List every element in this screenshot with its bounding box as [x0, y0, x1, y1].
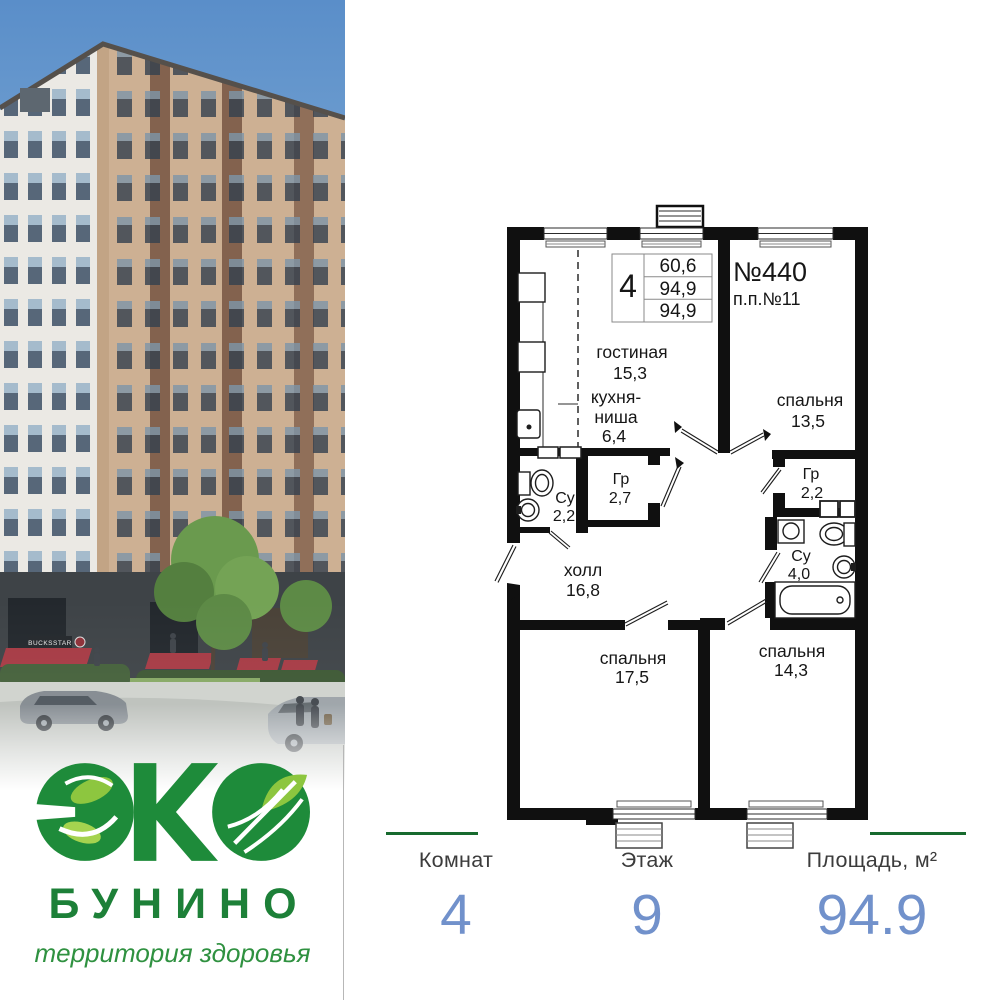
- summary-label: Площадь, м²: [782, 848, 962, 873]
- area-row: 94,9: [660, 301, 697, 322]
- room-name: Гр: [803, 466, 820, 483]
- apt-number: №440: [733, 257, 807, 287]
- toilet-tank-icon: [518, 472, 530, 495]
- eco-emblem: [36, 758, 310, 866]
- summary-label: Этаж: [577, 848, 717, 873]
- toilet-tank-icon: [844, 523, 855, 546]
- room-name: Су: [791, 548, 811, 565]
- brand-tagline: территория здоровья: [0, 940, 345, 966]
- summary-rooms: Комнат 4: [386, 848, 526, 944]
- building-photo: BUCKSSTAR: [0, 0, 345, 790]
- eco-letter-e-icon: [36, 763, 134, 861]
- room-area: 2,7: [609, 490, 631, 507]
- room-name: Су: [555, 490, 575, 507]
- room-area: 4,0: [788, 566, 810, 583]
- room-area: 17,5: [615, 667, 649, 687]
- room-name: спальня: [759, 641, 825, 661]
- floor-plan: 4 60,6 94,9 94,9 №440 п.п.№11 гостиная 1…: [478, 195, 868, 855]
- window-icon: [640, 228, 703, 247]
- vent-shaft-icon: [657, 206, 703, 227]
- green-rule-right: [870, 832, 966, 835]
- room-name: гостиная: [596, 342, 667, 362]
- room-area: 2,2: [801, 485, 823, 502]
- window-icon: [544, 228, 607, 247]
- room-area: 2,2: [553, 508, 575, 525]
- kitchen-sink-icon: [517, 410, 540, 438]
- area-row: 60,6: [660, 256, 697, 277]
- room-name: Гр: [613, 471, 630, 488]
- summary-label: Комнат: [386, 848, 526, 873]
- room-name: спальня: [600, 648, 666, 668]
- eco-letter-k-icon: [133, 763, 217, 861]
- green-rule-left: [386, 832, 478, 835]
- room-area: 15,3: [613, 363, 647, 383]
- room-area: 13,5: [791, 411, 825, 431]
- summary-floor: Этаж 9: [577, 848, 717, 944]
- logo-block: БУНИНО территория здоровья: [0, 758, 345, 966]
- rooms-count: 4: [619, 268, 637, 304]
- pp-number: п.п.№11: [733, 289, 801, 309]
- real-estate-card: BUCKSSTAR: [0, 0, 1000, 1000]
- room-name: ниша: [594, 407, 637, 427]
- room-name: кухня-: [591, 387, 641, 407]
- room-area: 14,3: [774, 660, 808, 680]
- brand-name: БУНИНО: [0, 883, 345, 926]
- area-row: 94,9: [660, 279, 697, 300]
- summary-area: Площадь, м² 94.9: [782, 848, 962, 944]
- summary-value: 4: [386, 887, 526, 944]
- window-icon: [758, 228, 833, 247]
- summary-value: 9: [577, 887, 717, 944]
- info-table: 4 60,6 94,9 94,9: [612, 254, 712, 322]
- room-name: спальня: [777, 390, 843, 410]
- summary-value: 94.9: [782, 887, 962, 944]
- eco-letter-o-leaf-icon: [212, 763, 310, 861]
- room-name: холл: [564, 560, 602, 580]
- room-area: 16,8: [566, 580, 600, 600]
- building-photo-illustration: BUCKSSTAR: [0, 0, 345, 790]
- room-area: 6,4: [602, 426, 627, 446]
